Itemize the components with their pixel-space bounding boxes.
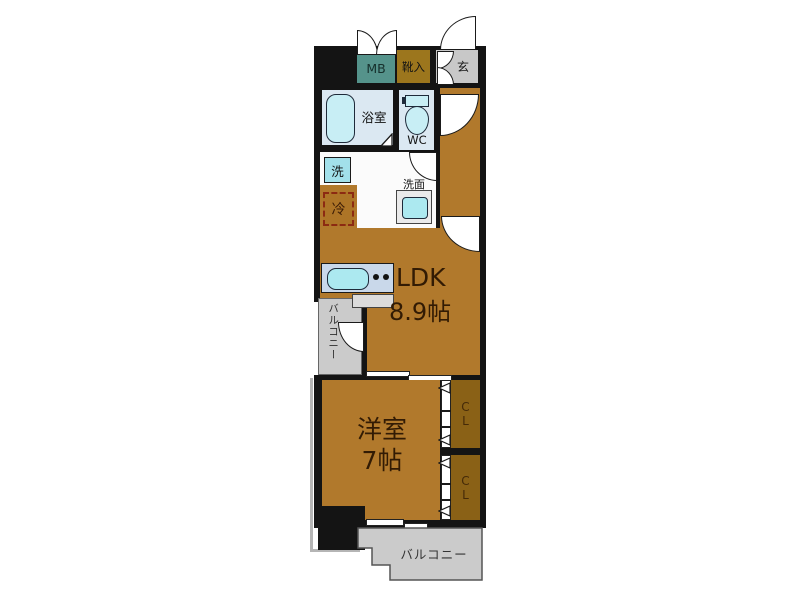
bathtub xyxy=(326,94,355,143)
bathroom-label: 浴室 xyxy=(352,107,396,126)
stove-burner xyxy=(383,274,389,280)
sliding-door-panel xyxy=(366,371,410,377)
folding-door-triangle xyxy=(438,382,451,394)
balcony-bottom-label: バルコニー xyxy=(396,544,472,563)
wc-label: WC xyxy=(401,133,433,147)
balcony-side-label: バルコニー xyxy=(327,303,339,361)
ldk-label: LDK xyxy=(396,263,446,292)
folding-door-tick xyxy=(441,499,451,501)
closet-lower-label: CL xyxy=(459,474,473,502)
washing-machine-label: 洗 xyxy=(331,161,344,180)
folding-door-triangle xyxy=(438,434,451,446)
shoe-cabinet-label: 靴入 xyxy=(402,59,425,75)
stove-burner xyxy=(373,274,379,280)
kitchen-cabinet xyxy=(352,294,394,308)
site-boundary-line-vertical xyxy=(310,378,313,552)
shoe-cabinet: 靴入 xyxy=(397,50,430,83)
closet-upper: CL xyxy=(451,380,480,448)
folding-door-tick xyxy=(441,410,451,412)
entry-door-arc xyxy=(440,16,476,50)
vanity-basin xyxy=(402,197,428,219)
toilet-flush-handle xyxy=(402,97,406,104)
washing-machine: 洗 xyxy=(324,157,351,183)
meter-box-label: MB xyxy=(366,61,385,76)
closet-lower: CL xyxy=(451,455,480,520)
kitchen-sink xyxy=(327,268,369,290)
floor-plan: バルコニー MB 靴入 玄 浴室 WC 洗 洗面 冷 LDK 8.9帖 xyxy=(0,0,800,600)
folding-door-tick xyxy=(441,426,451,428)
ldk-size-label: 8.9帖 xyxy=(389,292,451,327)
window-panel xyxy=(366,519,404,526)
folding-door-triangle xyxy=(438,457,451,469)
closet-upper-label: CL xyxy=(459,400,473,428)
bathroom-door-mark xyxy=(380,133,394,147)
meter-box-door-arc xyxy=(357,30,378,55)
meter-box: MB xyxy=(357,53,395,83)
folding-door-tick xyxy=(441,483,451,485)
refrigerator-label: 冷 xyxy=(332,199,346,219)
refrigerator-space: 冷 xyxy=(323,192,354,226)
meter-box-door-arc xyxy=(376,30,397,55)
folding-door-triangle xyxy=(438,505,451,517)
western-room-size-label: 7帖 xyxy=(350,441,414,477)
